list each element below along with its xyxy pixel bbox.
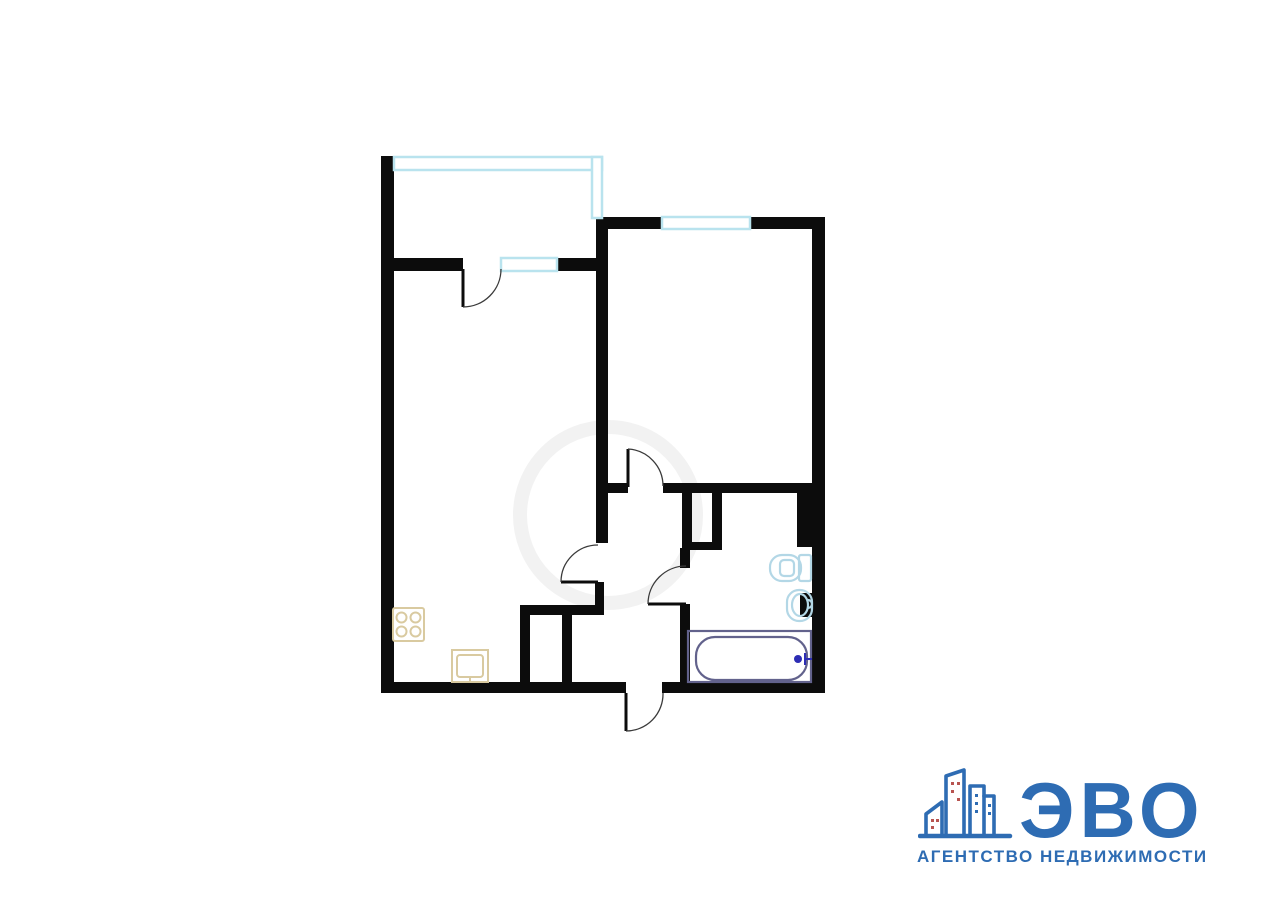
bottom-wall-left bbox=[381, 682, 626, 693]
doors-layer bbox=[463, 269, 686, 731]
bathtub-icon bbox=[688, 631, 812, 682]
walls-layer bbox=[381, 156, 825, 693]
balcony-glazing-right-window bbox=[592, 157, 602, 218]
closet-mid-wall bbox=[562, 615, 572, 683]
closet-left-wall bbox=[520, 615, 530, 683]
kitchen-bedroom-wall bbox=[596, 229, 608, 543]
windows-layer bbox=[394, 157, 750, 271]
bedroom-top-wall-right bbox=[750, 217, 825, 229]
agency-logo: ЭВО АГЕНТСТВО НЕДВИЖИМОСТИ bbox=[915, 760, 1225, 880]
bedroom-door-swing-arc bbox=[628, 449, 663, 486]
closet-top-wall bbox=[520, 605, 603, 615]
bedroom-bottom-wall-left bbox=[596, 483, 628, 493]
living-room-door bbox=[561, 545, 598, 582]
right-wall bbox=[812, 217, 825, 693]
stove-icon bbox=[393, 608, 424, 641]
shaft-left-wall bbox=[682, 493, 692, 550]
bathroom-sink-icon bbox=[787, 590, 812, 621]
bedroom-window-window bbox=[662, 217, 750, 229]
bedroom-bottom-wall-right bbox=[663, 483, 812, 493]
entrance-door-swing-arc bbox=[626, 693, 663, 731]
toilet-icon bbox=[770, 555, 811, 581]
bedroom-door bbox=[628, 449, 663, 487]
bathroom-pilaster-upper bbox=[797, 488, 812, 547]
balcony-door bbox=[463, 269, 501, 307]
agency-name: ЭВО bbox=[1019, 771, 1219, 849]
living-room-door-swing-arc bbox=[561, 545, 598, 582]
entrance-door bbox=[626, 693, 663, 731]
buildings-icon bbox=[918, 762, 1014, 842]
floorplan-page: ЭВО АГЕНТСТВО НЕДВИЖИМОСТИ bbox=[0, 0, 1280, 905]
bedroom-top-wall-left bbox=[596, 217, 662, 229]
bottom-wall-right bbox=[662, 682, 825, 693]
bathroom-wall-stub bbox=[680, 548, 690, 568]
bathtub-faucet-icon bbox=[794, 655, 802, 663]
balcony-block-wall-left bbox=[381, 258, 463, 271]
agency-tagline: АГЕНТСТВО НЕДВИЖИМОСТИ bbox=[917, 847, 1217, 867]
kitchen-window-window bbox=[501, 258, 557, 271]
balcony-glazing-top-window bbox=[394, 157, 602, 170]
kitchen-sink-icon bbox=[452, 650, 488, 683]
balcony-door-swing-arc bbox=[463, 269, 501, 307]
shaft-right-wall bbox=[712, 493, 722, 550]
